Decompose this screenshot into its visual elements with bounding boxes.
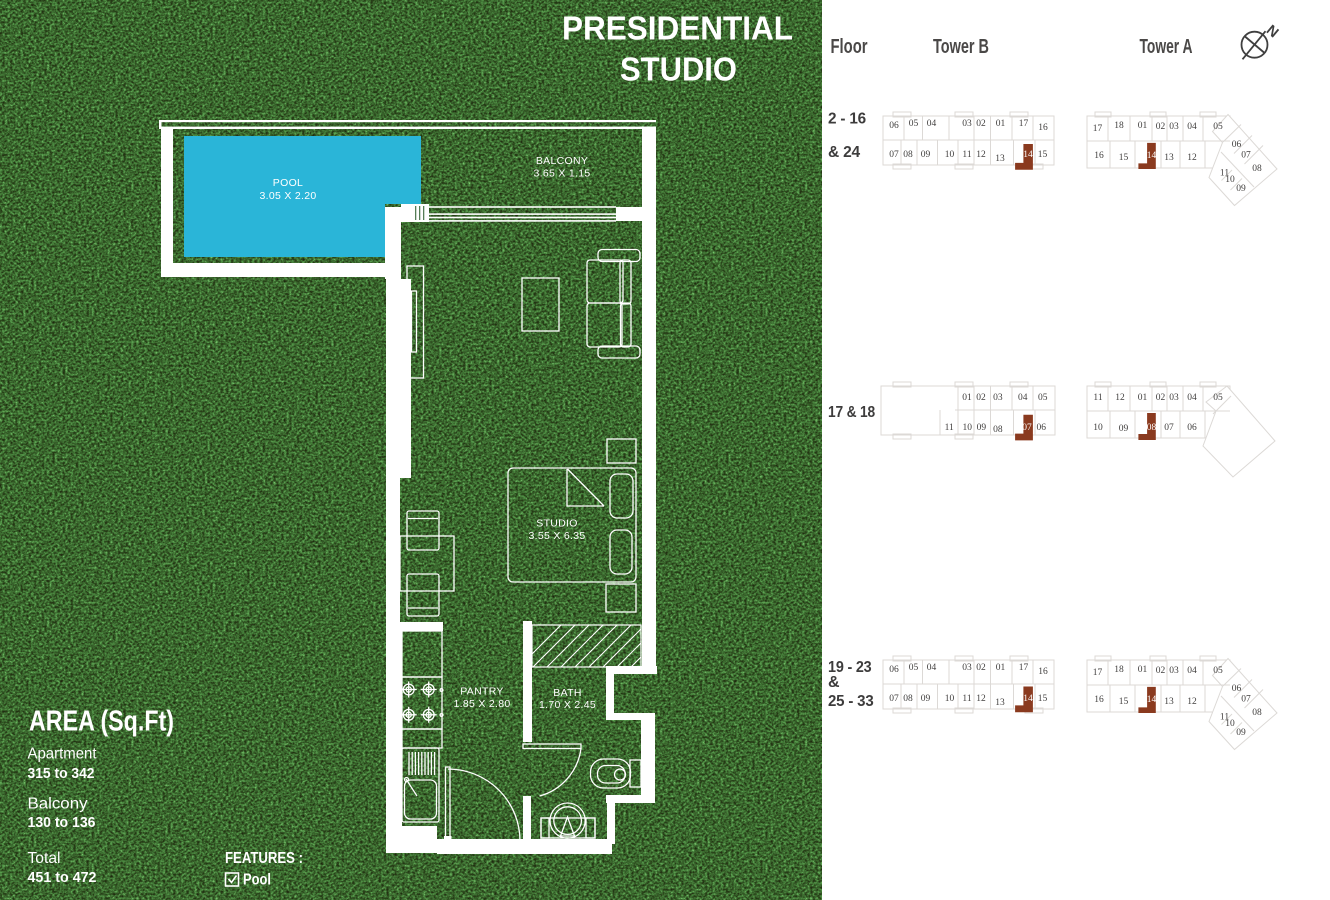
- svg-text:Total: Total: [28, 850, 61, 867]
- svg-text:07: 07: [889, 694, 899, 704]
- svg-text:05: 05: [909, 119, 919, 129]
- svg-text:03: 03: [1169, 122, 1179, 132]
- svg-text:03: 03: [962, 119, 972, 129]
- svg-text:12: 12: [976, 694, 986, 704]
- svg-text:01: 01: [996, 663, 1006, 673]
- svg-text:05: 05: [1213, 393, 1223, 403]
- svg-text:06: 06: [889, 121, 899, 131]
- svg-text:05: 05: [1038, 393, 1048, 403]
- svg-text:&: &: [828, 674, 840, 691]
- svg-text:09: 09: [921, 150, 931, 160]
- svg-text:10: 10: [1225, 719, 1235, 729]
- svg-text:3.65 X 1.15: 3.65 X 1.15: [533, 168, 590, 180]
- svg-text:POOL: POOL: [273, 177, 303, 189]
- svg-text:07: 07: [1164, 423, 1174, 433]
- svg-text:06: 06: [1187, 423, 1197, 433]
- svg-text:Apartment: Apartment: [28, 746, 98, 763]
- svg-text:15: 15: [1038, 694, 1048, 704]
- svg-text:13: 13: [1164, 153, 1174, 163]
- svg-text:11: 11: [945, 423, 954, 433]
- svg-text:AREA (Sq.Ft): AREA (Sq.Ft): [29, 706, 174, 738]
- svg-text:Balcony: Balcony: [28, 796, 88, 813]
- svg-text:PANTRY: PANTRY: [460, 686, 503, 698]
- svg-text:17: 17: [1019, 663, 1029, 673]
- svg-text:04: 04: [1187, 393, 1197, 403]
- svg-text:12: 12: [1187, 697, 1197, 707]
- svg-text:1.85 X 2.80: 1.85 X 2.80: [453, 698, 510, 710]
- svg-text:03: 03: [993, 393, 1003, 403]
- svg-text:12: 12: [976, 150, 986, 160]
- svg-text:13: 13: [1164, 697, 1174, 707]
- svg-text:07: 07: [889, 150, 899, 160]
- svg-text:08: 08: [993, 425, 1003, 435]
- svg-text:10: 10: [945, 694, 955, 704]
- svg-text:11: 11: [962, 150, 971, 160]
- svg-text:3.05 X 2.20: 3.05 X 2.20: [259, 190, 316, 202]
- svg-text:10: 10: [1225, 175, 1235, 185]
- svg-text:01: 01: [962, 393, 972, 403]
- svg-text:17: 17: [1093, 668, 1103, 678]
- svg-text:12: 12: [1187, 153, 1197, 163]
- svg-text:18: 18: [1114, 121, 1124, 131]
- svg-text:Pool: Pool: [243, 872, 271, 889]
- svg-text:11: 11: [1093, 393, 1102, 403]
- svg-text:15: 15: [1038, 150, 1048, 160]
- svg-text:17: 17: [1019, 119, 1029, 129]
- svg-text:04: 04: [1187, 666, 1197, 676]
- svg-text:08: 08: [1252, 708, 1262, 718]
- svg-text:03: 03: [962, 663, 972, 673]
- svg-text:Floor: Floor: [831, 36, 868, 58]
- svg-text:09: 09: [1236, 728, 1246, 738]
- svg-text:02: 02: [976, 119, 986, 129]
- svg-text:14: 14: [1147, 151, 1157, 161]
- svg-text:STUDIO: STUDIO: [620, 51, 737, 88]
- svg-text:01: 01: [1138, 121, 1148, 131]
- svg-text:05: 05: [1213, 122, 1223, 132]
- svg-text:11: 11: [962, 694, 971, 704]
- svg-text:14: 14: [1023, 150, 1033, 160]
- svg-text:09: 09: [977, 423, 987, 433]
- svg-text:09: 09: [1119, 424, 1129, 434]
- svg-text:09: 09: [921, 694, 931, 704]
- svg-text:PRESIDENTIAL: PRESIDENTIAL: [562, 10, 793, 47]
- svg-text:STUDIO: STUDIO: [536, 518, 577, 530]
- svg-text:Tower B: Tower B: [933, 36, 989, 58]
- svg-text:02: 02: [976, 393, 986, 403]
- svg-text:04: 04: [927, 119, 937, 129]
- svg-text:02: 02: [976, 663, 986, 673]
- svg-text:16: 16: [1094, 695, 1104, 705]
- svg-text:04: 04: [927, 663, 937, 673]
- svg-text:07: 07: [1241, 695, 1251, 705]
- svg-text:07: 07: [1022, 423, 1032, 433]
- svg-text:16: 16: [1094, 151, 1104, 161]
- svg-text:18: 18: [1114, 665, 1124, 675]
- svg-text:04: 04: [1018, 393, 1028, 403]
- svg-text:& 24: & 24: [828, 144, 860, 161]
- svg-text:03: 03: [1169, 666, 1179, 676]
- svg-text:3.55 X 6.35: 3.55 X 6.35: [528, 530, 585, 542]
- svg-text:05: 05: [909, 663, 919, 673]
- svg-text:08: 08: [1252, 164, 1262, 174]
- svg-text:12: 12: [1115, 393, 1125, 403]
- svg-text:02: 02: [1156, 666, 1166, 676]
- svg-text:01: 01: [1138, 393, 1148, 403]
- svg-text:01: 01: [1138, 665, 1148, 675]
- svg-text:06: 06: [889, 665, 899, 675]
- svg-text:2 - 16: 2 - 16: [828, 111, 866, 128]
- svg-text:10: 10: [962, 423, 972, 433]
- svg-text:BATH: BATH: [553, 687, 581, 699]
- svg-text:05: 05: [1213, 666, 1223, 676]
- svg-text:08: 08: [1147, 423, 1157, 433]
- svg-text:03: 03: [1169, 393, 1179, 403]
- svg-text:17: 17: [1093, 124, 1103, 134]
- svg-text:14: 14: [1147, 695, 1157, 705]
- svg-text:17 & 18: 17 & 18: [828, 404, 875, 421]
- svg-text:Tower A: Tower A: [1140, 36, 1193, 58]
- svg-text:06: 06: [1232, 140, 1242, 150]
- svg-text:16: 16: [1038, 123, 1048, 133]
- svg-text:25 - 33: 25 - 33: [828, 693, 874, 710]
- svg-text:315 to 342: 315 to 342: [28, 766, 95, 782]
- svg-text:10: 10: [945, 150, 955, 160]
- svg-text:08: 08: [903, 694, 913, 704]
- svg-text:14: 14: [1023, 694, 1033, 704]
- svg-text:FEATURES :: FEATURES :: [225, 850, 303, 867]
- svg-text:16: 16: [1038, 667, 1048, 677]
- svg-text:15: 15: [1119, 153, 1129, 163]
- svg-text:07: 07: [1241, 151, 1251, 161]
- svg-text:02: 02: [1156, 122, 1166, 132]
- svg-text:10: 10: [1093, 423, 1103, 433]
- svg-text:08: 08: [903, 150, 913, 160]
- svg-text:13: 13: [995, 698, 1005, 708]
- svg-text:06: 06: [1037, 423, 1047, 433]
- svg-text:130 to 136: 130 to 136: [28, 815, 96, 831]
- svg-text:15: 15: [1119, 697, 1129, 707]
- svg-text:BALCONY: BALCONY: [536, 155, 588, 167]
- svg-text:13: 13: [995, 154, 1005, 164]
- svg-text:04: 04: [1187, 122, 1197, 132]
- svg-text:1.70 X 2.45: 1.70 X 2.45: [539, 699, 596, 711]
- svg-text:451 to 472: 451 to 472: [28, 870, 97, 886]
- svg-text:02: 02: [1156, 393, 1166, 403]
- svg-text:06: 06: [1232, 684, 1242, 694]
- svg-text:01: 01: [996, 119, 1006, 129]
- svg-text:09: 09: [1236, 184, 1246, 194]
